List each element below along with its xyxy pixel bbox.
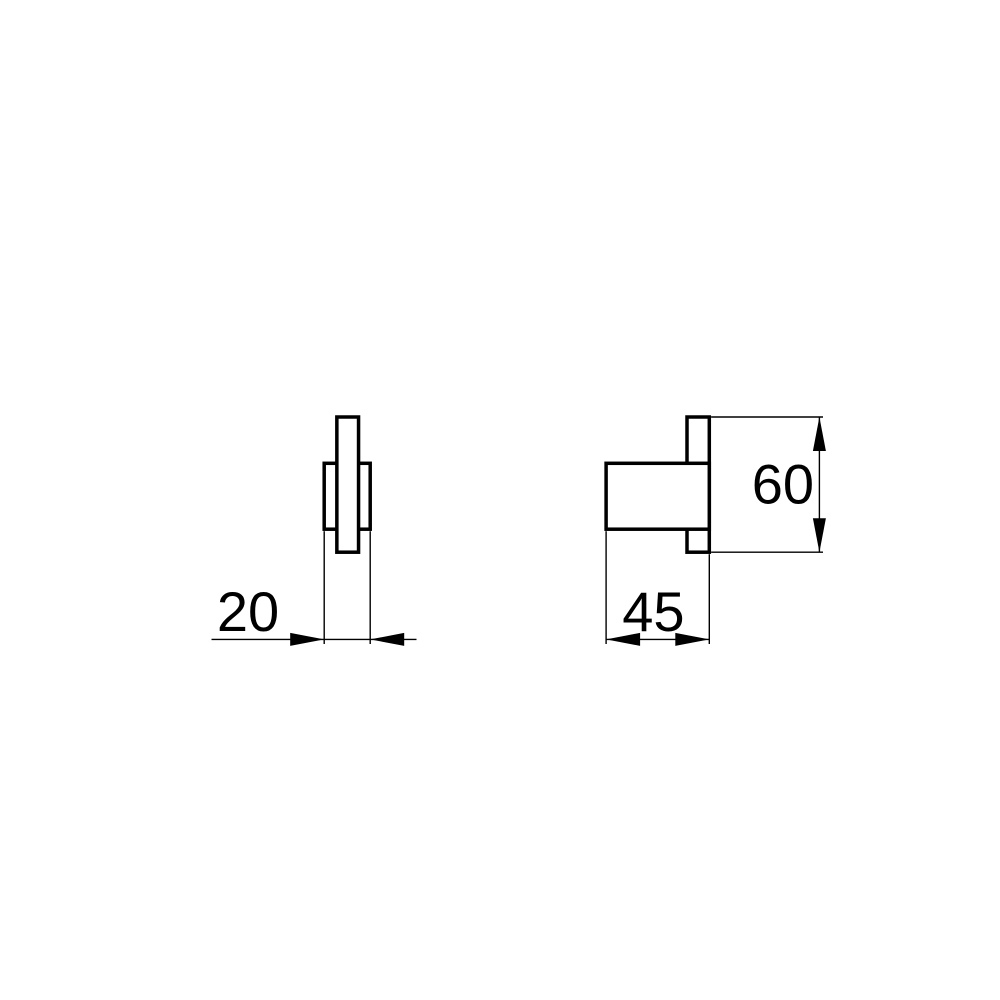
- svg-text:60: 60: [752, 452, 814, 515]
- svg-text:20: 20: [217, 580, 279, 643]
- svg-text:45: 45: [622, 580, 684, 643]
